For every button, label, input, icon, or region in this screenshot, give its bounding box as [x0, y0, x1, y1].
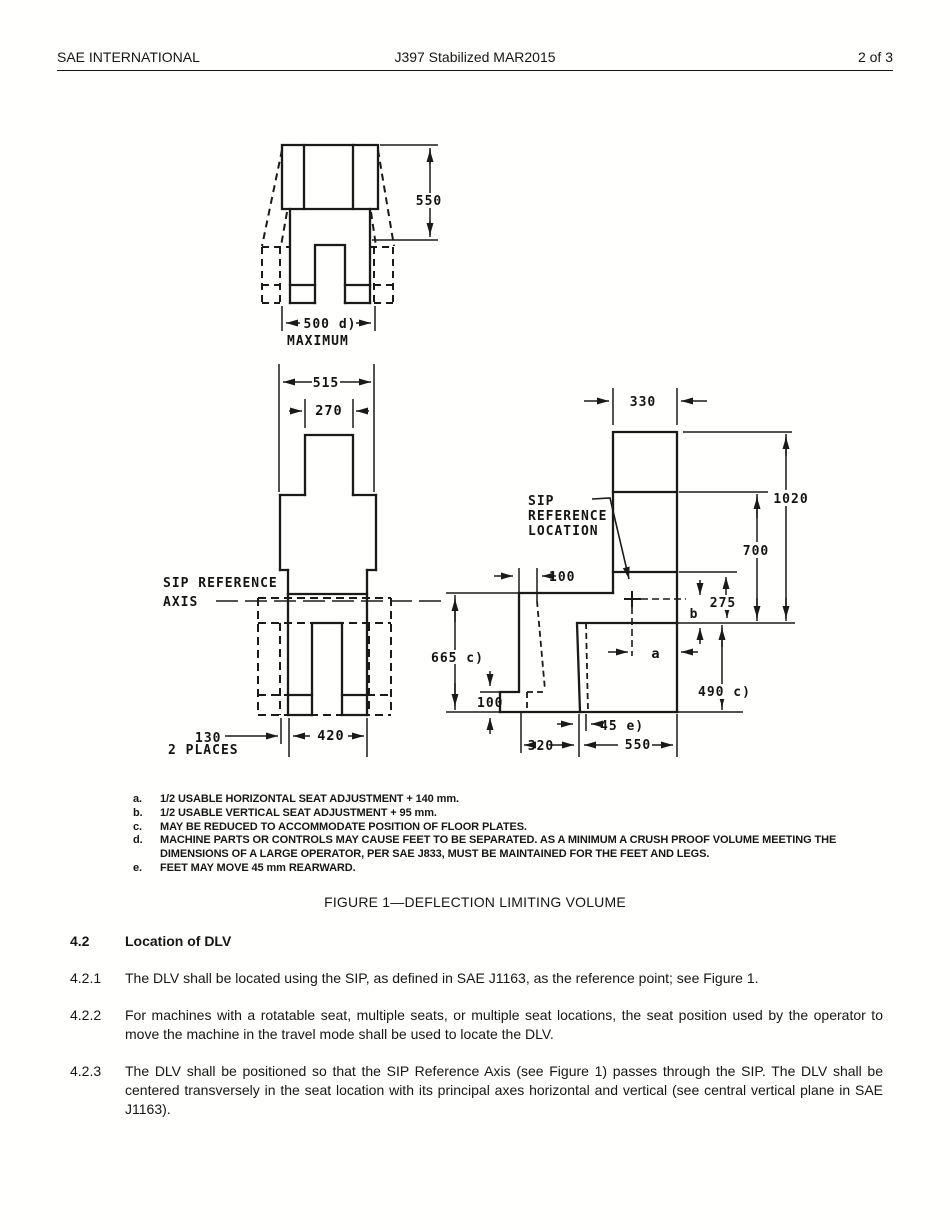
header-doc-title: J397 Stabilized MAR2015: [0, 49, 950, 65]
footnote-c-text: MAY BE REDUCED TO ACCOMMODATE POSITION O…: [160, 821, 845, 835]
sip-reference-location-label-2: REFERENCE: [528, 509, 607, 524]
sip-reference-location-label-1: SIP: [528, 494, 554, 509]
dim-top-130-note: 2 PLACES: [168, 743, 239, 758]
header-rule: [57, 70, 893, 71]
dim-side-b: b: [690, 607, 699, 622]
footnote-a-text: 1/2 USABLE HORIZONTAL SEAT ADJUSTMENT + …: [160, 793, 845, 807]
dim-top-width: 515: [313, 376, 339, 391]
drawing-labels: 550 500 d) MAXIMUM 515 270 SIP REFERENCE…: [163, 194, 809, 758]
sip-cross-mark: [624, 591, 641, 607]
dim-side-275: 275: [710, 596, 736, 611]
footnote-c: c. MAY BE REDUCED TO ACCOMMODATE POSITIO…: [133, 821, 845, 835]
dim-front-max-note: MAXIMUM: [287, 334, 349, 349]
dim-top-420: 420: [317, 728, 344, 744]
sip-reference-location-label-3: LOCATION: [528, 524, 599, 539]
top-view-dashed-spread: [258, 598, 391, 715]
section-4-2-2-number: 4.2.2: [70, 1006, 125, 1044]
header-page-number: 2 of 3: [858, 49, 893, 65]
dim-side-a: a: [651, 646, 660, 662]
figure-footnotes: a. 1/2 USABLE HORIZONTAL SEAT ADJUSTMENT…: [133, 793, 845, 876]
dim-side-320: 320: [528, 739, 554, 754]
footnote-e-id: e.: [133, 862, 160, 876]
section-4-2-2-text: For machines with a rotatable seat, mult…: [125, 1006, 883, 1044]
footnote-b: b. 1/2 USABLE VERTICAL SEAT ADJUSTMENT +…: [133, 807, 845, 821]
section-4-2: 4.2 Location of DLV: [70, 932, 883, 951]
document-page: SAE INTERNATIONAL J397 Stabilized MAR201…: [0, 0, 950, 1230]
figure-caption: FIGURE 1—DEFLECTION LIMITING VOLUME: [0, 894, 950, 910]
dim-front-width: 500 d): [304, 317, 357, 332]
side-view-outline: [500, 432, 677, 712]
footnote-d-text: MACHINE PARTS OR CONTROLS MAY CAUSE FEET…: [160, 834, 845, 862]
footnote-d: d. MACHINE PARTS OR CONTROLS MAY CAUSE F…: [133, 834, 845, 862]
top-view-outline: [280, 435, 376, 715]
dim-side-490: 490 c): [698, 685, 751, 700]
section-4-2-2: 4.2.2 For machines with a rotatable seat…: [70, 1006, 883, 1044]
section-4-2-number: 4.2: [70, 932, 125, 951]
front-view-outline: [282, 145, 378, 303]
footnote-b-text: 1/2 USABLE VERTICAL SEAT ADJUSTMENT + 95…: [160, 807, 845, 821]
sip-reference-axis-label-1: SIP REFERENCE: [163, 576, 278, 591]
dim-side-665: 665 c): [431, 651, 484, 666]
dim-side-330: 330: [630, 395, 656, 410]
dim-side-550: 550: [625, 738, 651, 753]
sip-reference-axis-label-2: AXIS: [163, 595, 198, 610]
figure-1-drawing: 550 500 d) MAXIMUM 515 270 SIP REFERENCE…: [0, 100, 950, 790]
section-4-2-title: Location of DLV: [125, 932, 883, 951]
dim-top-head: 270: [315, 403, 342, 419]
dim-side-45: 45 e): [600, 719, 644, 734]
footnote-a-id: a.: [133, 793, 160, 807]
section-4-2-3: 4.2.3 The DLV shall be positioned so tha…: [70, 1062, 883, 1119]
dim-side-1020: 1020: [773, 492, 808, 507]
footnote-c-id: c.: [133, 821, 160, 835]
footnote-a: a. 1/2 USABLE HORIZONTAL SEAT ADJUSTMENT…: [133, 793, 845, 807]
dim-front-height: 550: [416, 194, 442, 209]
section-4-2-1: 4.2.1 The DLV shall be located using the…: [70, 969, 883, 988]
section-4-2-3-number: 4.2.3: [70, 1062, 125, 1119]
section-4-2-3-text: The DLV shall be positioned so that the …: [125, 1062, 883, 1119]
footnote-b-id: b.: [133, 807, 160, 821]
section-4-2-1-text: The DLV shall be located using the SIP, …: [125, 969, 883, 988]
footnote-e: e. FEET MAY MOVE 45 mm REARWARD.: [133, 862, 845, 876]
dim-side-700: 700: [743, 544, 769, 559]
dim-side-100-top: 100: [549, 570, 575, 585]
footnote-d-id: d.: [133, 834, 160, 862]
top-view-dimension-lines: [225, 364, 374, 757]
dim-side-100-bottom: 100: [477, 696, 503, 711]
footnote-e-text: FEET MAY MOVE 45 mm REARWARD.: [160, 862, 845, 876]
section-4-2-1-number: 4.2.1: [70, 969, 125, 988]
